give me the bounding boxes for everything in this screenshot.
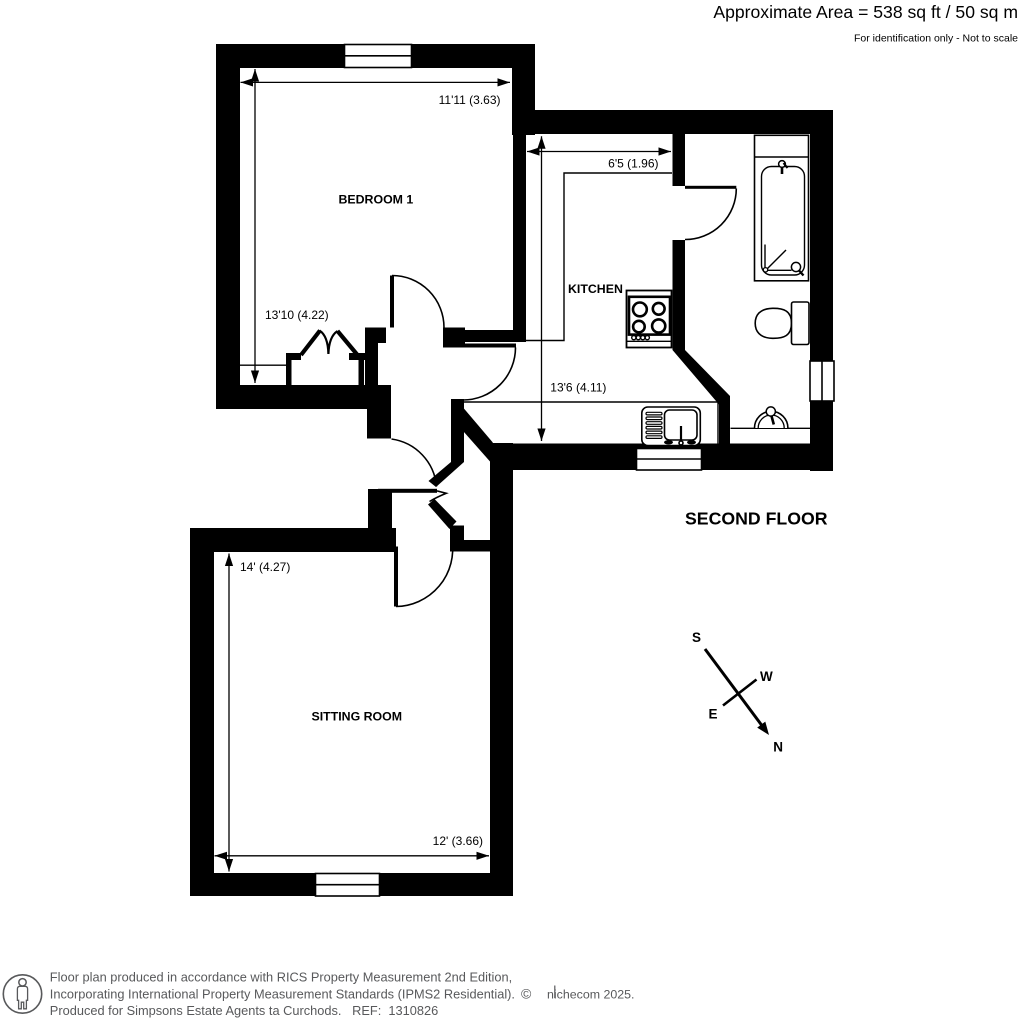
svg-text:Approximate Area = 538 sq ft /: Approximate Area = 538 sq ft / 50 sq m (713, 2, 1018, 22)
svg-text:Floor plan produced in accorda: Floor plan produced in accordance with R… (50, 970, 512, 985)
svg-text:BEDROOM 1: BEDROOM 1 (339, 193, 414, 207)
svg-text:W: W (760, 669, 773, 684)
svg-text:13'10 (4.22): 13'10 (4.22) (265, 308, 329, 322)
svg-text:SECOND FLOOR: SECOND FLOOR (685, 509, 828, 529)
svg-text:E: E (709, 706, 718, 721)
svg-text:14' (4.27): 14' (4.27) (240, 560, 290, 574)
svg-text:SITTING ROOM: SITTING ROOM (312, 710, 403, 724)
svg-text:Produced for Simpsons Estate A: Produced for Simpsons Estate Agents ta C… (50, 1003, 438, 1018)
svg-text:KITCHEN: KITCHEN (568, 282, 623, 296)
svg-text:For identification only - Not: For identification only - Not to scale (854, 32, 1018, 44)
svg-text:©: © (521, 986, 532, 1002)
svg-text:nichecom 2025.: nichecom 2025. (547, 988, 634, 1002)
svg-text:6'5 (1.96): 6'5 (1.96) (608, 157, 658, 171)
svg-text:S: S (692, 630, 701, 645)
svg-text:11'11 (3.63): 11'11 (3.63) (439, 93, 501, 107)
svg-text:N: N (773, 740, 783, 755)
svg-text:12' (3.66): 12' (3.66) (433, 834, 483, 848)
svg-text:13'6 (4.11): 13'6 (4.11) (550, 381, 606, 395)
svg-text:Incorporating International Pr: Incorporating International Property Mea… (50, 987, 515, 1002)
